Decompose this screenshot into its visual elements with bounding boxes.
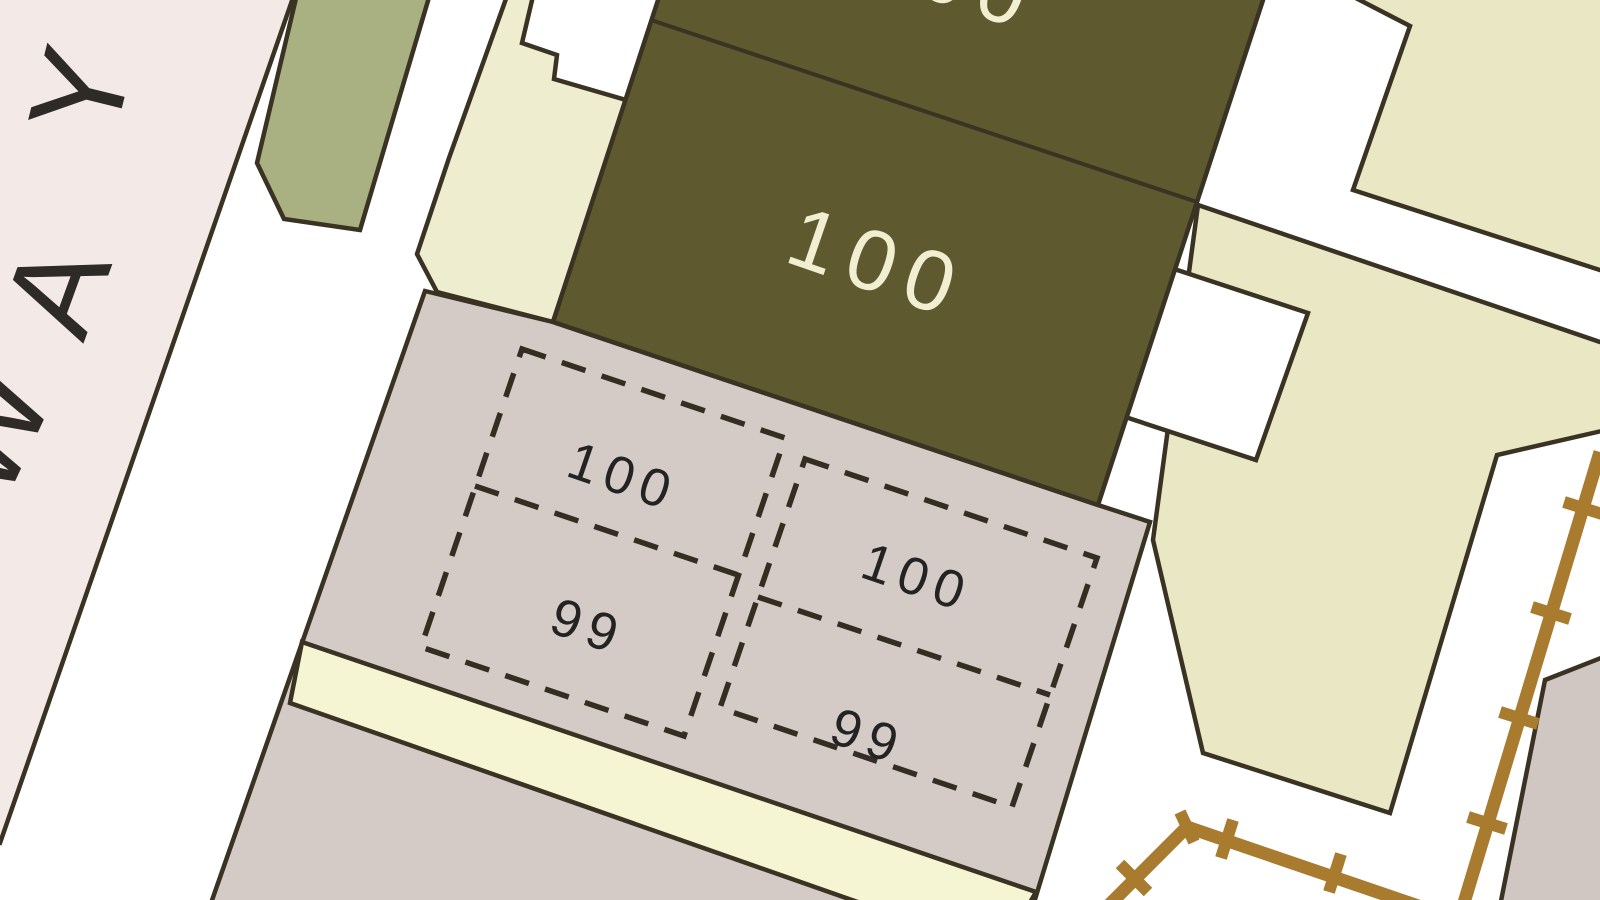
map-canvas[interactable]: 100 100 100 99 100 99 W A Y — [0, 0, 1600, 900]
map-viewport[interactable]: 100 100 100 99 100 99 W A Y — [0, 0, 1600, 900]
